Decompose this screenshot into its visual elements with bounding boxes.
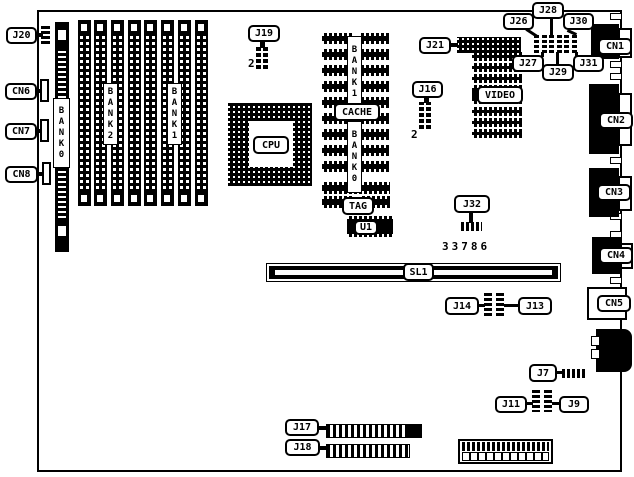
pin1-marker-j19: 2 xyxy=(248,57,255,70)
callout-j21: J21 xyxy=(419,37,451,54)
label-bank2: BANK2 xyxy=(103,83,118,145)
cache-chip xyxy=(359,81,389,92)
label-cache-bank0: BANK0 xyxy=(347,121,362,193)
keyboard-connector xyxy=(596,329,632,372)
callout-j26: J26 xyxy=(503,13,534,30)
callout-u1: U1 xyxy=(354,220,378,235)
part-number: 33786 xyxy=(442,240,490,253)
pin1-marker-j16: 2 xyxy=(411,128,418,141)
jumper-j31 xyxy=(572,35,577,53)
callout-tag: TAG xyxy=(342,197,374,215)
jumper-j19 xyxy=(256,47,269,69)
cache-chip xyxy=(359,49,389,60)
jumper-j30 xyxy=(564,35,569,53)
callout-j14: J14 xyxy=(445,297,479,315)
leader-j19 xyxy=(260,41,265,48)
header-j18 xyxy=(326,444,410,458)
jumper-j11 xyxy=(532,390,540,412)
edge-tab xyxy=(610,61,622,68)
label-bank1: BANK1 xyxy=(167,83,182,145)
header-j21 xyxy=(457,37,521,53)
callout-j30: J30 xyxy=(563,13,594,30)
bank0-strip-key-bottom xyxy=(58,226,66,236)
simm-slot-5 xyxy=(144,20,157,206)
leader-j28 xyxy=(550,18,553,35)
simm-slot-1 xyxy=(78,20,91,206)
callout-j7: J7 xyxy=(529,364,557,382)
video-chip xyxy=(472,107,522,116)
edge-tab xyxy=(610,13,622,20)
callout-cpu: CPU xyxy=(253,136,289,154)
callout-j18: J18 xyxy=(285,439,320,456)
video-chip xyxy=(472,74,522,83)
edge-tab xyxy=(610,157,622,164)
keyboard-connector-tab xyxy=(591,336,600,346)
label-bank0-strip: BANK0 xyxy=(53,98,70,168)
callout-j16: J16 xyxy=(412,81,443,98)
callout-j17: J17 xyxy=(285,419,319,436)
motherboard-diagram: J20 CN6 CN7 CN8 BANK0 BANK2 BANK1 J19 2 … xyxy=(0,0,634,477)
callout-j29: J29 xyxy=(542,64,574,81)
jumper-j32 xyxy=(461,222,482,231)
jumper-j28 xyxy=(549,35,554,53)
power-connector-sockets xyxy=(462,452,549,461)
jumper-j9 xyxy=(544,390,552,412)
callout-sl1: SL1 xyxy=(403,263,434,281)
label-cache-bank1: BANK1 xyxy=(347,36,362,108)
callout-j13: J13 xyxy=(518,297,552,315)
jumper-j29 xyxy=(557,35,562,53)
cache-chip xyxy=(359,145,389,156)
callout-j27: J27 xyxy=(512,55,544,72)
callout-cn1: CN1 xyxy=(598,38,632,55)
header-j17 xyxy=(326,424,407,438)
jumper-j13 xyxy=(496,293,504,316)
jumper-j7 xyxy=(562,369,587,378)
keyboard-connector-tab xyxy=(591,349,600,359)
callout-j19: J19 xyxy=(248,25,280,42)
callout-j32: J32 xyxy=(454,195,490,213)
jumper-j27 xyxy=(542,35,547,53)
video-chip xyxy=(472,129,522,138)
edge-tab xyxy=(610,277,622,284)
jumper-j26 xyxy=(534,35,539,53)
simm-slot-8 xyxy=(195,20,208,206)
bank0-strip-key-top xyxy=(58,30,66,40)
cache-chip xyxy=(359,65,389,76)
leader-j13 xyxy=(504,304,518,307)
cache-chip xyxy=(359,33,389,44)
callout-j11: J11 xyxy=(495,396,527,413)
callout-cn3: CN3 xyxy=(597,184,631,201)
callout-cn5: CN5 xyxy=(597,295,631,312)
callout-cn2: CN2 xyxy=(599,112,633,129)
callout-j31: J31 xyxy=(573,55,604,72)
callout-cn8: CN8 xyxy=(5,166,38,183)
callout-cn4: CN4 xyxy=(599,247,633,264)
video-chip xyxy=(472,118,522,127)
simm-slot-4 xyxy=(128,20,141,206)
callout-j9: J9 xyxy=(559,396,589,413)
edge-tab xyxy=(610,73,622,80)
cache-chip xyxy=(359,161,389,172)
callout-j28: J28 xyxy=(532,2,564,19)
callout-cn7: CN7 xyxy=(5,123,37,140)
cache-chip xyxy=(359,129,389,140)
jumper-j14 xyxy=(484,293,492,316)
callout-video: VIDEO xyxy=(477,86,523,104)
leader-j32 xyxy=(469,212,473,223)
callout-cache: CACHE xyxy=(334,103,380,121)
power-connector-pins xyxy=(462,442,549,451)
header-j17-end xyxy=(406,424,422,438)
callout-j20: J20 xyxy=(6,27,37,44)
callout-cn6: CN6 xyxy=(5,83,37,100)
jumper-j16 xyxy=(419,102,433,129)
